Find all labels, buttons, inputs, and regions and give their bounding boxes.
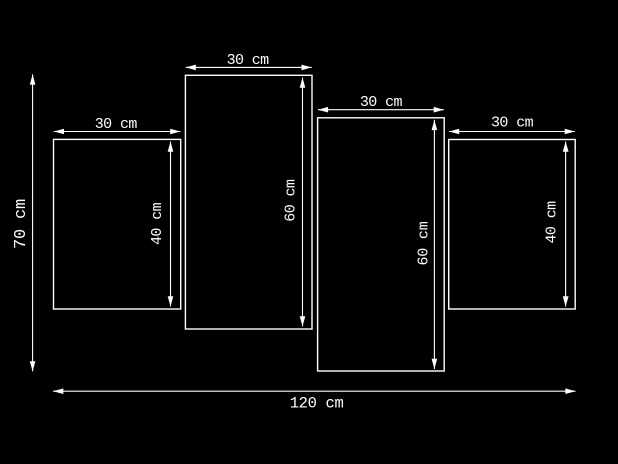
svg-text:30 cm: 30 cm [95,116,138,133]
svg-text:70 cm: 70 cm [12,199,31,249]
svg-text:40 cm: 40 cm [149,202,166,245]
svg-text:30 cm: 30 cm [227,52,270,69]
svg-text:30 cm: 30 cm [360,94,403,111]
svg-text:60 cm: 60 cm [416,221,433,265]
svg-text:30 cm: 30 cm [491,115,534,132]
svg-text:40 cm: 40 cm [544,201,561,244]
svg-text:120 cm: 120 cm [290,395,344,413]
svg-text:60 cm: 60 cm [282,179,299,222]
